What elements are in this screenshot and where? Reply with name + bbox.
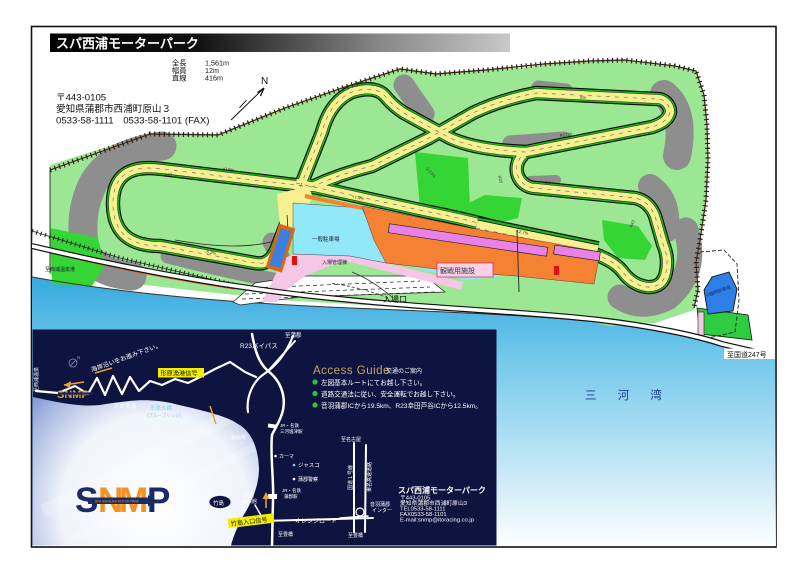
svg-text:至名古屋: 至名古屋 xyxy=(341,436,361,443)
svg-text:交通のご案内: 交通のご案内 xyxy=(386,367,422,375)
svg-text:N: N xyxy=(261,76,268,87)
svg-text:競艇場: 競艇場 xyxy=(231,434,246,441)
svg-text:国道１号線: 国道１号線 xyxy=(347,465,354,490)
svg-text:インター: インター xyxy=(372,507,392,514)
svg-text:JR・名鉄: JR・名鉄 xyxy=(280,422,299,429)
svg-text:至豊橋: 至豊橋 xyxy=(278,531,293,538)
svg-text:至西浦温泉: 至西浦温泉 xyxy=(33,367,40,392)
svg-text:至豊橋: 至豊橋 xyxy=(348,532,363,539)
svg-text:形原漁港信号: 形原漁港信号 xyxy=(161,370,198,378)
svg-text:音羽蒲郡ICから19.5km、R23幸田芦谷ICから12.5: 音羽蒲郡ICから19.5km、R23幸田芦谷ICから12.5km。 xyxy=(321,401,482,410)
svg-text:Access Guide: Access Guide xyxy=(313,365,390,377)
svg-text:三河塩津駅: 三河塩津駅 xyxy=(280,428,303,435)
svg-text:直線: 直線 xyxy=(172,74,186,83)
svg-text:R23バイパス: R23バイパス xyxy=(240,342,278,350)
svg-text:形原大橋: 形原大橋 xyxy=(150,404,173,412)
svg-text:JR・名鉄: JR・名鉄 xyxy=(282,487,301,494)
svg-text:東名高速道路: 東名高速道路 xyxy=(366,462,373,492)
svg-text:〒443-0105: 〒443-0105 xyxy=(56,93,106,104)
svg-text:左図基本ルートにてお越し下さい。: 左図基本ルートにてお越し下さい。 xyxy=(321,378,426,387)
svg-text:E-mail:snmp@itoracing.co.jp: E-mail:snmp@itoracing.co.jp xyxy=(400,518,474,524)
svg-text:N: N xyxy=(77,355,80,360)
svg-text:蒲郡警察: 蒲郡警察 xyxy=(298,476,318,483)
svg-text:形原漁港: 形原漁港 xyxy=(114,402,137,410)
svg-text:0%: 0% xyxy=(545,180,552,185)
svg-text:竹島: 竹島 xyxy=(244,492,254,499)
svg-text:観戦用施設: 観戦用施設 xyxy=(440,266,475,275)
svg-text:愛知県蒲郡市西浦町原山３: 愛知県蒲郡市西浦町原山３ xyxy=(56,103,171,115)
svg-text:竹島: 竹島 xyxy=(213,499,225,507)
svg-text:音羽蒲郡: 音羽蒲郡 xyxy=(370,501,390,508)
svg-text:入場管理棟: 入場管理棟 xyxy=(322,259,347,266)
svg-text:至蒲郡: 至蒲郡 xyxy=(285,331,302,339)
svg-text:一般駐車場: 一般駐車場 xyxy=(312,235,340,243)
svg-text:三 河 湾: 三 河 湾 xyxy=(585,388,671,402)
svg-text:オレンジロード: オレンジロード xyxy=(295,518,337,525)
svg-text:道路交通法に従い、安全運転でお越し下さい。: 道路交通法に従い、安全運転でお越し下さい。 xyxy=(321,390,459,399)
svg-text:(ブルーブリッジ): (ブルーブリッジ) xyxy=(147,412,182,418)
svg-text:スパ西浦モーターパーク: スパ西浦モーターパーク xyxy=(56,36,199,51)
svg-text:至西浦温泉港: 至西浦温泉港 xyxy=(45,266,75,273)
svg-text:入場口: 入場口 xyxy=(383,294,407,304)
svg-text:至国道247号: 至国道247号 xyxy=(727,350,767,359)
svg-text:416m: 416m xyxy=(205,74,223,83)
svg-text:蒲郡駅: 蒲郡駅 xyxy=(284,493,298,500)
svg-text:0533-58-1111 0533-58-1101 (FAX: 0533-58-1111 0533-58-1101 (FAX) xyxy=(56,116,209,127)
svg-text:水族館: 水族館 xyxy=(242,498,257,505)
svg-text:0%: 0% xyxy=(580,95,586,100)
svg-text:SPA NISHIURA MOTOR PARK: SPA NISHIURA MOTOR PARK xyxy=(95,500,140,504)
svg-text:スパ西浦モーターパーク: スパ西浦モーターパーク xyxy=(398,485,486,495)
svg-text:SNMP: SNMP xyxy=(57,389,89,401)
svg-text:カーマ: カーマ xyxy=(279,454,294,460)
svg-text:ジャスコ: ジャスコ xyxy=(298,462,320,469)
